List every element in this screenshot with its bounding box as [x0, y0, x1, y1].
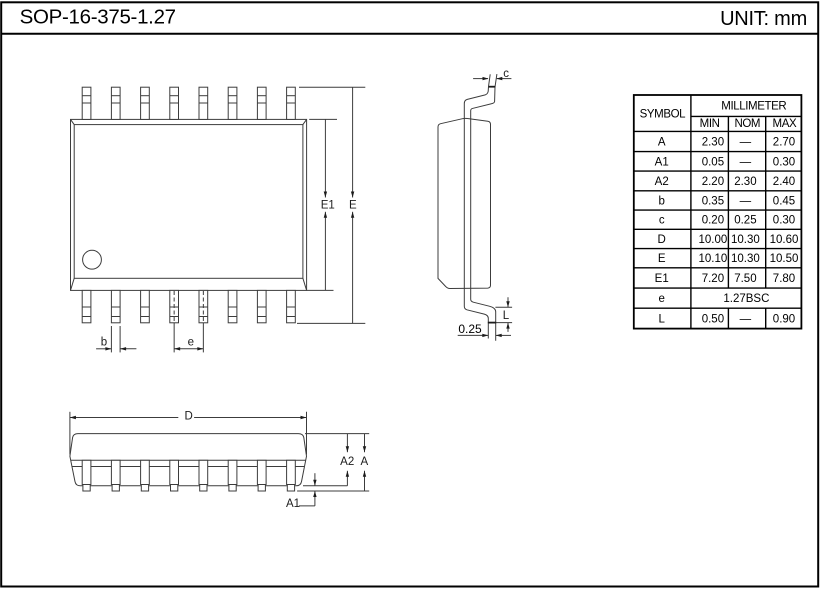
svg-text:10.30: 10.30 [731, 253, 760, 265]
svg-text:10.00: 10.00 [699, 234, 728, 246]
svg-text:0.45: 0.45 [773, 195, 795, 207]
svg-text:1.27BSC: 1.27BSC [723, 293, 769, 305]
svg-text:7.20: 7.20 [702, 273, 724, 285]
svg-text:L: L [503, 310, 510, 322]
svg-text:0.90: 0.90 [773, 313, 795, 325]
svg-text:SYMBOL: SYMBOL [640, 109, 687, 121]
svg-text:0.30: 0.30 [773, 215, 795, 227]
svg-text:SOP-16-375-1.27: SOP-16-375-1.27 [20, 5, 176, 28]
svg-text:2.70: 2.70 [773, 137, 795, 149]
svg-text:D: D [185, 411, 193, 423]
svg-text:NOM: NOM [734, 118, 760, 130]
svg-text:e: e [658, 293, 664, 305]
svg-text:0.05: 0.05 [702, 156, 724, 168]
svg-text:7.50: 7.50 [734, 273, 756, 285]
svg-text:MAX: MAX [773, 118, 797, 130]
svg-text:c: c [503, 68, 509, 80]
svg-text:b: b [101, 337, 107, 349]
svg-text:2.40: 2.40 [773, 176, 795, 188]
svg-text:E: E [349, 200, 357, 212]
svg-text:0.30: 0.30 [773, 156, 795, 168]
svg-text:10.10: 10.10 [699, 253, 728, 265]
svg-text:2.30: 2.30 [734, 176, 756, 188]
svg-text:L: L [658, 313, 665, 325]
svg-text:c: c [659, 215, 665, 227]
svg-text:10.50: 10.50 [770, 253, 799, 265]
svg-text:0.25: 0.25 [734, 215, 756, 227]
svg-text:0.35: 0.35 [702, 195, 724, 207]
svg-text:10.30: 10.30 [731, 234, 760, 246]
svg-text:E1: E1 [655, 273, 669, 285]
svg-text:e: e [188, 337, 194, 349]
svg-text:—: — [740, 156, 752, 168]
svg-text:2.30: 2.30 [702, 137, 724, 149]
svg-text:—: — [740, 195, 752, 207]
svg-text:7.80: 7.80 [773, 273, 795, 285]
svg-text:E1: E1 [321, 200, 335, 212]
svg-text:A: A [658, 137, 666, 149]
svg-text:MIN: MIN [700, 118, 720, 130]
svg-text:E: E [658, 253, 666, 265]
svg-text:A1: A1 [286, 498, 300, 510]
svg-text:—: — [740, 137, 752, 149]
svg-text:0.20: 0.20 [702, 215, 724, 227]
svg-text:D: D [658, 234, 666, 246]
svg-text:A1: A1 [655, 156, 669, 168]
svg-text:A: A [360, 456, 368, 468]
svg-text:b: b [658, 195, 664, 207]
svg-text:2.20: 2.20 [702, 176, 724, 188]
svg-text:10.60: 10.60 [770, 234, 799, 246]
svg-text:A2: A2 [655, 176, 669, 188]
svg-text:A2: A2 [340, 456, 354, 468]
svg-text:UNIT: mm: UNIT: mm [720, 8, 807, 30]
svg-text:0.50: 0.50 [702, 313, 724, 325]
svg-text:MILLIMETER: MILLIMETER [721, 101, 786, 113]
svg-text:—: — [740, 313, 752, 325]
svg-text:0.25: 0.25 [458, 322, 482, 336]
